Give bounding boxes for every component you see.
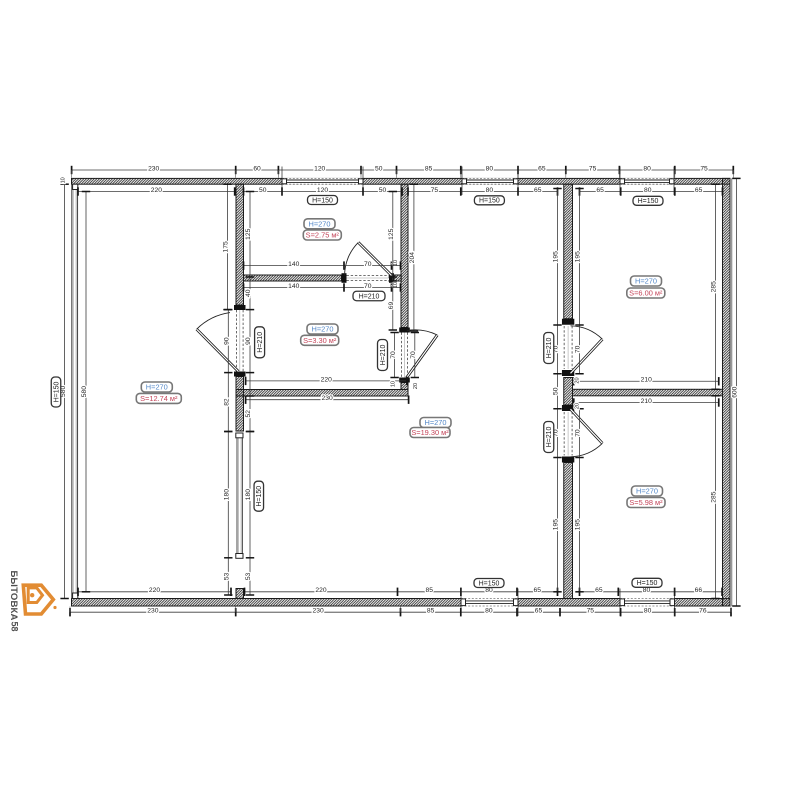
svg-text:175: 175 — [223, 241, 230, 252]
svg-text:140: 140 — [288, 261, 299, 268]
svg-text:70: 70 — [575, 345, 582, 353]
svg-text:195: 195 — [575, 519, 582, 530]
svg-text:50: 50 — [259, 187, 267, 194]
svg-text:195: 195 — [575, 251, 582, 262]
svg-text:H=150: H=150 — [638, 198, 659, 205]
svg-text:70: 70 — [575, 429, 582, 437]
svg-text:220: 220 — [149, 587, 160, 594]
svg-text:10: 10 — [391, 381, 397, 387]
svg-text:H=210: H=210 — [359, 293, 380, 300]
svg-text:140: 140 — [288, 283, 299, 290]
svg-text:80: 80 — [644, 608, 652, 615]
svg-text:70: 70 — [410, 351, 417, 359]
svg-text:180: 180 — [245, 489, 252, 500]
svg-text:70: 70 — [390, 351, 397, 359]
svg-text:S=19.30 м²: S=19.30 м² — [411, 428, 449, 437]
svg-text:60: 60 — [253, 165, 261, 172]
svg-text:125: 125 — [245, 228, 252, 239]
svg-text:75: 75 — [589, 165, 597, 172]
svg-text:H=150: H=150 — [479, 580, 500, 587]
svg-text:120: 120 — [317, 187, 328, 194]
svg-text:80: 80 — [486, 187, 494, 194]
svg-text:20: 20 — [413, 383, 419, 389]
svg-text:H=210: H=210 — [257, 332, 264, 353]
svg-text:H=150: H=150 — [479, 198, 500, 205]
svg-text:10: 10 — [60, 177, 66, 183]
svg-text:S=3.30 м²: S=3.30 м² — [303, 336, 337, 345]
svg-text:210: 210 — [641, 398, 652, 405]
svg-text:75: 75 — [700, 165, 708, 172]
svg-text:204: 204 — [409, 252, 416, 263]
svg-text:580: 580 — [81, 386, 88, 397]
svg-text:285: 285 — [711, 281, 718, 292]
svg-text:H=210: H=210 — [546, 337, 553, 358]
svg-text:20: 20 — [574, 377, 580, 383]
svg-text:180: 180 — [224, 489, 231, 500]
svg-text:85: 85 — [425, 165, 433, 172]
svg-text:80: 80 — [485, 608, 493, 615]
svg-text:65: 65 — [596, 187, 604, 194]
svg-text:90: 90 — [224, 337, 231, 345]
svg-text:125: 125 — [388, 228, 395, 239]
svg-text:58: 58 — [9, 622, 19, 632]
svg-text:50: 50 — [375, 165, 383, 172]
svg-text:H=270: H=270 — [636, 487, 658, 496]
svg-text:230: 230 — [147, 608, 158, 615]
svg-text:H=150: H=150 — [256, 486, 263, 507]
svg-text:H=210: H=210 — [380, 344, 387, 365]
svg-text:H=270: H=270 — [312, 325, 334, 334]
svg-text:210: 210 — [641, 377, 652, 384]
svg-text:65: 65 — [538, 165, 546, 172]
svg-text:65: 65 — [535, 608, 543, 615]
svg-text:S=5.98 м²: S=5.98 м² — [629, 498, 663, 507]
svg-text:53: 53 — [245, 572, 252, 580]
svg-text:65: 65 — [695, 187, 703, 194]
svg-text:220: 220 — [151, 187, 162, 194]
svg-text:120: 120 — [314, 165, 325, 172]
svg-text:230: 230 — [322, 395, 333, 402]
svg-text:H=270: H=270 — [425, 418, 447, 427]
svg-text:76: 76 — [699, 608, 707, 615]
svg-text:H=270: H=270 — [309, 219, 331, 228]
svg-text:82: 82 — [224, 398, 231, 406]
svg-text:220: 220 — [321, 376, 332, 383]
svg-text:50: 50 — [379, 187, 387, 194]
svg-text:53: 53 — [224, 572, 231, 580]
svg-text:75: 75 — [587, 608, 595, 615]
svg-text:65: 65 — [534, 587, 542, 594]
svg-text:70: 70 — [364, 261, 372, 268]
svg-text:70: 70 — [364, 283, 372, 290]
svg-text:230: 230 — [313, 608, 324, 615]
svg-text:65: 65 — [595, 587, 603, 594]
svg-text:H=150: H=150 — [312, 197, 333, 204]
svg-text:66: 66 — [695, 587, 703, 594]
svg-text:90: 90 — [245, 337, 252, 345]
svg-text:75: 75 — [431, 187, 439, 194]
svg-text:H=270: H=270 — [635, 277, 657, 286]
svg-text:80: 80 — [486, 165, 494, 172]
svg-text:85: 85 — [425, 587, 433, 594]
svg-text:80: 80 — [644, 187, 652, 194]
svg-text:50: 50 — [553, 387, 560, 395]
svg-text:20: 20 — [574, 403, 580, 409]
svg-text:S=12.74 м²: S=12.74 м² — [140, 394, 178, 403]
svg-text:S=2.75 м²: S=2.75 м² — [306, 231, 340, 240]
svg-text:H=150: H=150 — [53, 381, 60, 402]
svg-text:52: 52 — [245, 410, 252, 418]
svg-text:H=150: H=150 — [637, 580, 658, 587]
svg-text:H=210: H=210 — [546, 426, 553, 447]
svg-text:H=270: H=270 — [146, 383, 168, 392]
svg-text:10: 10 — [393, 260, 399, 266]
svg-text:S=6.00 м²: S=6.00 м² — [629, 289, 663, 298]
svg-text:БЫТОВКА: БЫТОВКА — [8, 571, 19, 621]
svg-text:65: 65 — [534, 187, 542, 194]
svg-text:80: 80 — [643, 587, 651, 594]
svg-text:80: 80 — [643, 165, 651, 172]
svg-text:285: 285 — [711, 491, 718, 502]
svg-text:80: 80 — [485, 587, 493, 594]
svg-text:85: 85 — [427, 608, 435, 615]
svg-text:195: 195 — [553, 251, 560, 262]
svg-text:230: 230 — [148, 165, 159, 172]
svg-text:600: 600 — [732, 386, 739, 397]
svg-text:69: 69 — [388, 302, 395, 310]
svg-text:220: 220 — [315, 587, 326, 594]
svg-text:40: 40 — [245, 289, 252, 297]
svg-text:195: 195 — [553, 519, 560, 530]
